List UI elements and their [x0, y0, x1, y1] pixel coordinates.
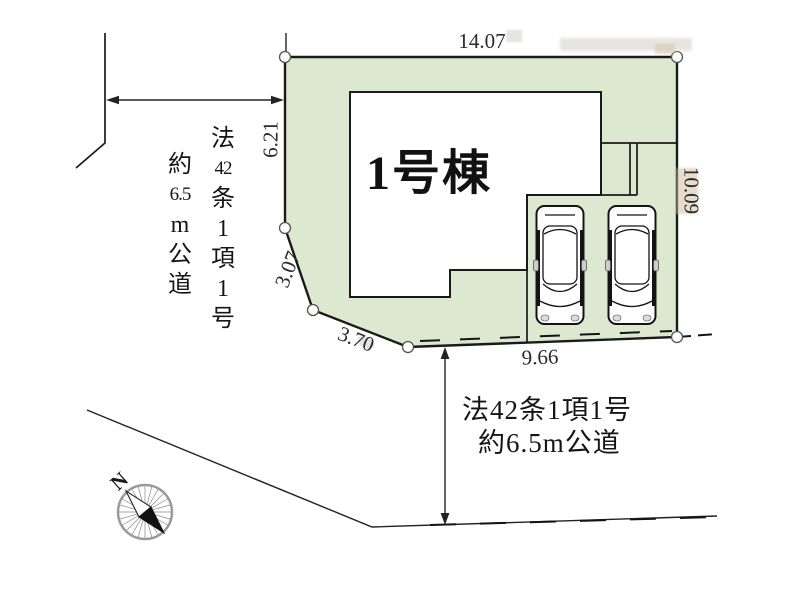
road-note-south-line1: 法42条1項1号	[462, 397, 632, 424]
car-2	[606, 206, 659, 324]
road-edge-west	[76, 33, 105, 168]
plan-drawing	[0, 0, 800, 595]
road-note-south-line2: 約6.5m公道	[478, 430, 621, 457]
compass-rose	[118, 485, 172, 539]
dimension-top: 14.07	[447, 31, 517, 52]
site-plan: 14.07 6.21 3.07 3.70 9.66 10.09 1号棟 法 42…	[0, 0, 800, 595]
road-edge-south	[87, 410, 717, 527]
car-1	[534, 206, 587, 324]
road-note-west-line2: 約 6.5 m 公 道	[164, 150, 196, 300]
dimension-left: 6.21	[261, 113, 282, 167]
dimension-right: 10.09	[681, 159, 702, 223]
road-width-arrow-west	[106, 96, 284, 105]
dimension-bottom: 9.66	[512, 346, 569, 369]
building-name: 1号棟	[366, 150, 492, 198]
road-width-arrow-south	[441, 347, 450, 525]
road-note-west-line1: 法 42 条 1 項 1 号	[207, 124, 239, 334]
